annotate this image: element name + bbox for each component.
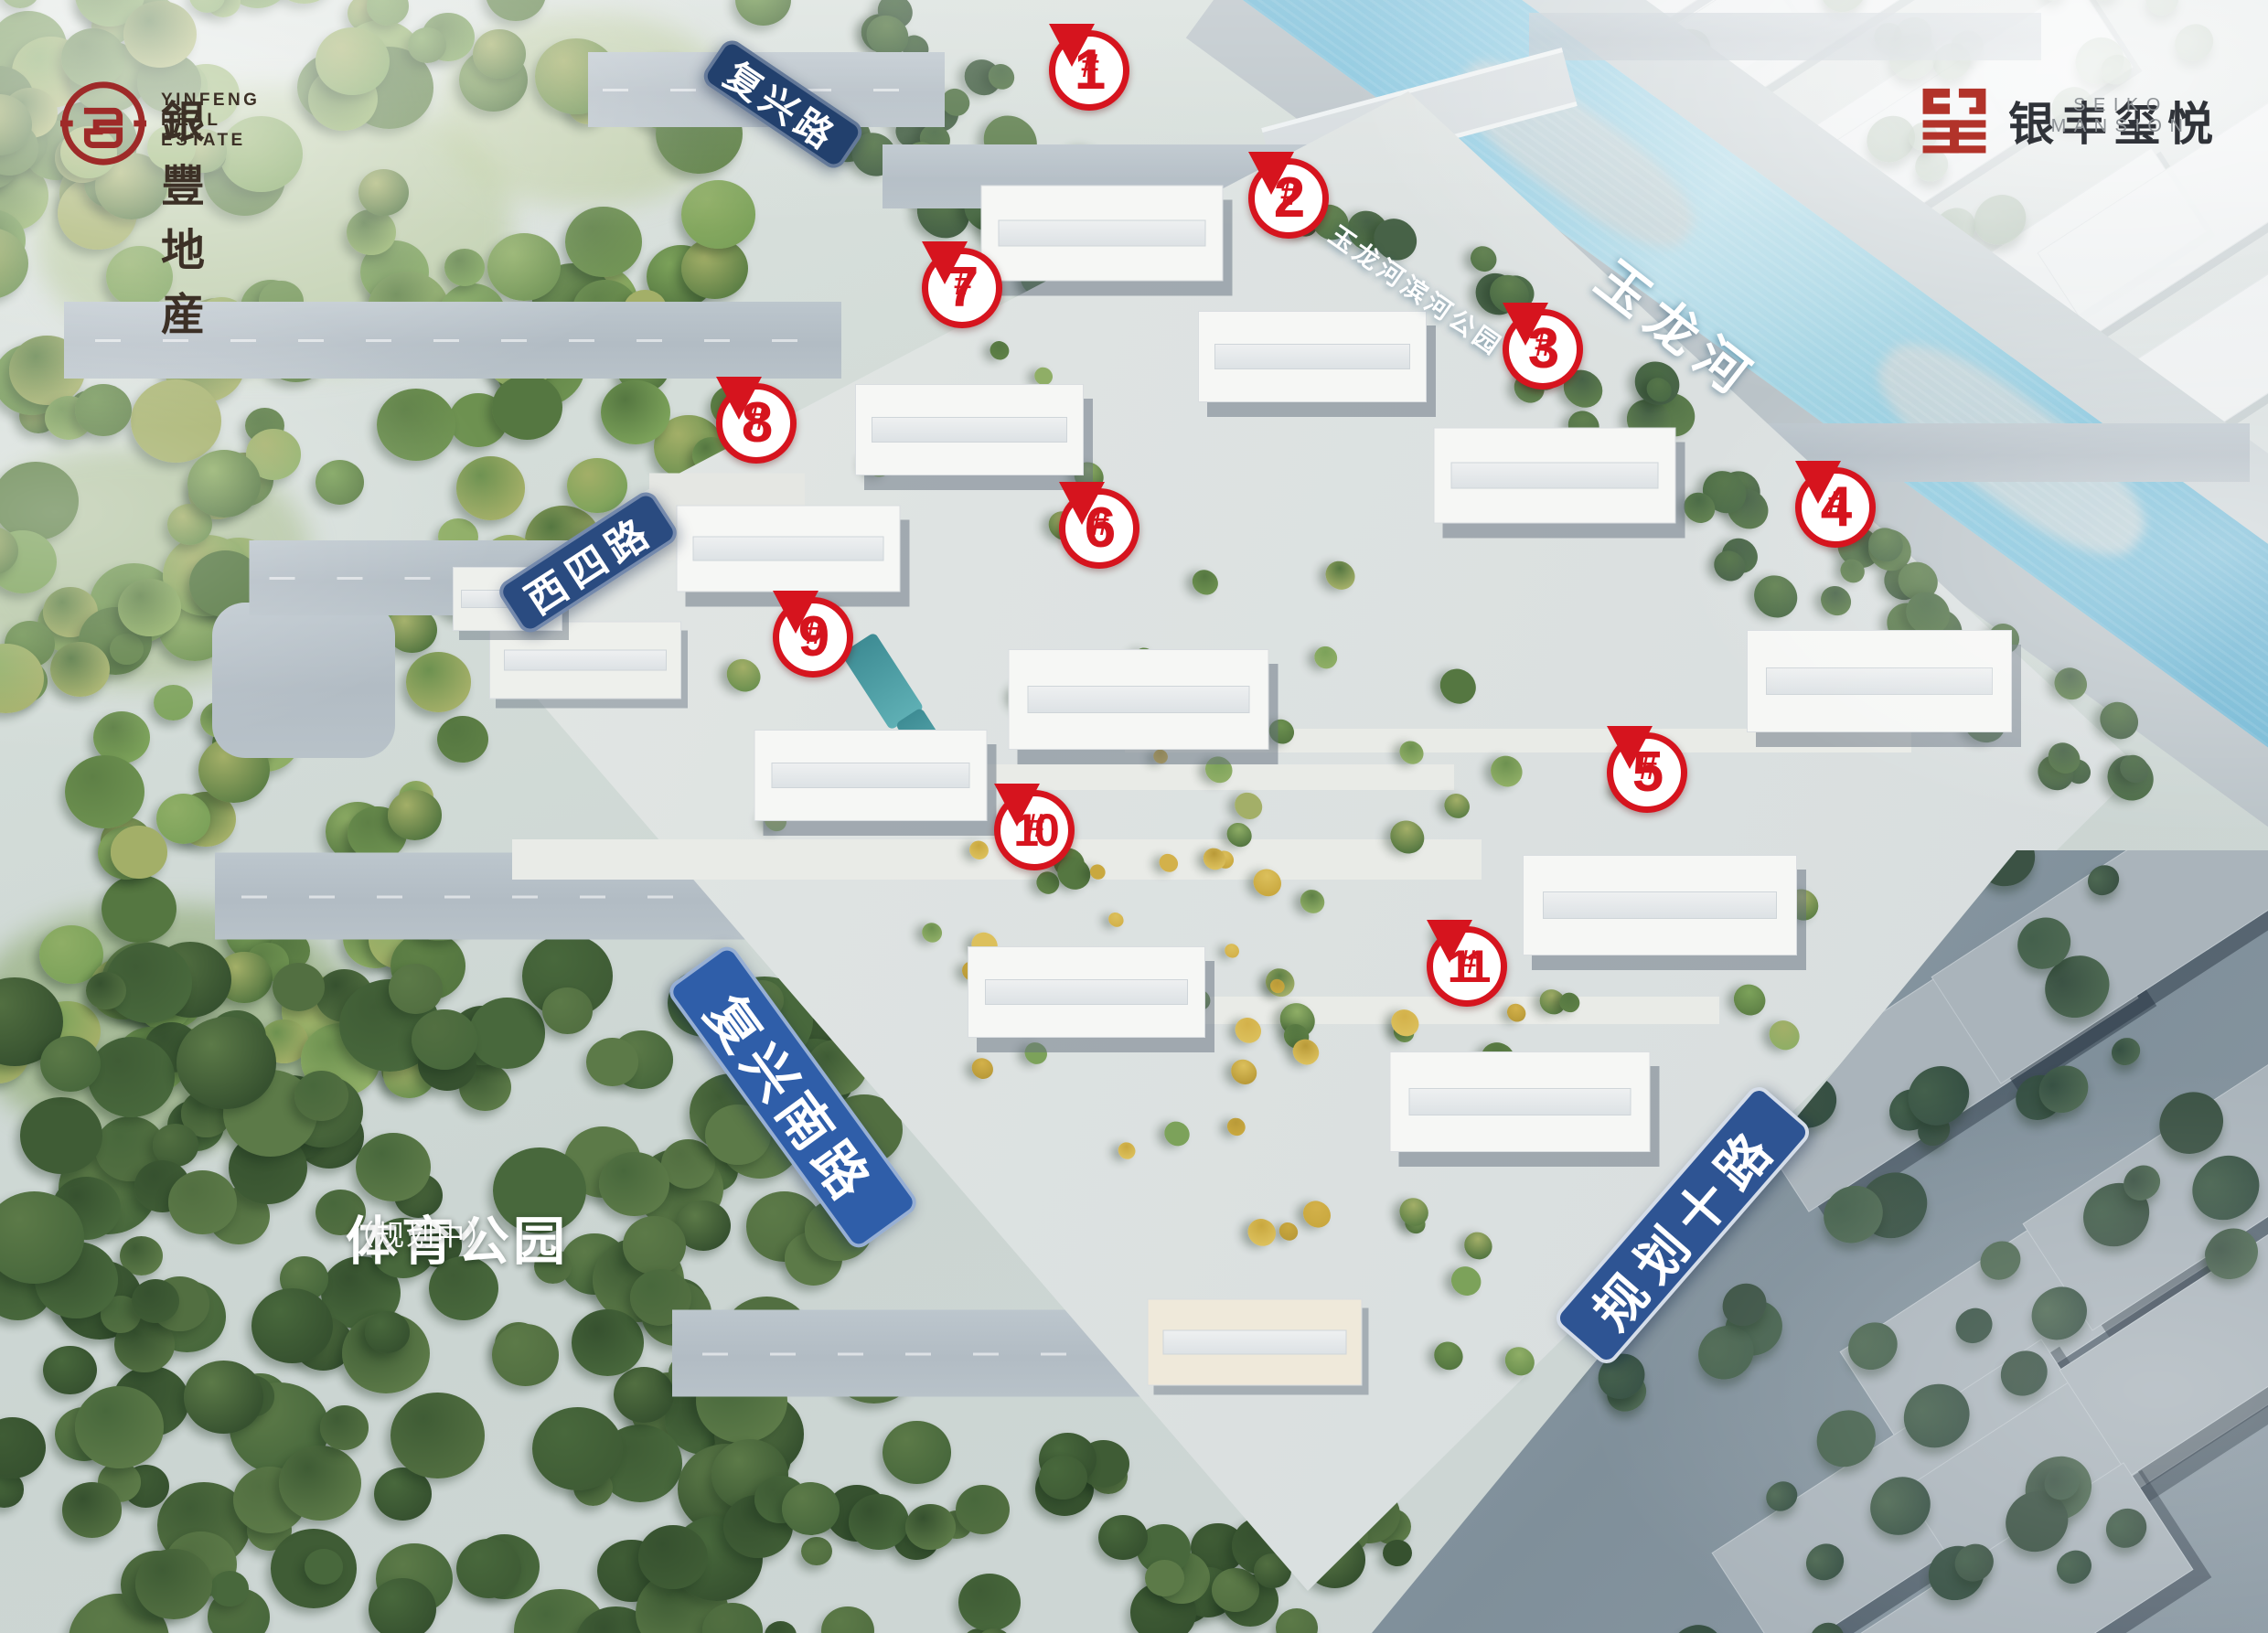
project-name-en: SEIKO MANSION	[2008, 95, 2233, 137]
project-logo: 银丰玺悦 SEIKO MANSION	[1917, 82, 2246, 183]
developer-seal-icon	[59, 79, 148, 168]
project-seal-icon	[1917, 84, 1992, 159]
developer-logo: 銀豐地産 YINFENG REAL ESTATE	[59, 79, 488, 179]
site-plan-rendering: 复兴路西四路复兴南路规划十路玉龙河玉龙河滨河公园体育公园（规划中） 1#2#3#…	[0, 0, 2268, 1633]
developer-name-en: YINFENG REAL ESTATE	[161, 91, 260, 151]
branding-layer: 銀豐地産 YINFENG REAL ESTATE 银丰玺悦 SEIKO MANS…	[0, 0, 2268, 1633]
